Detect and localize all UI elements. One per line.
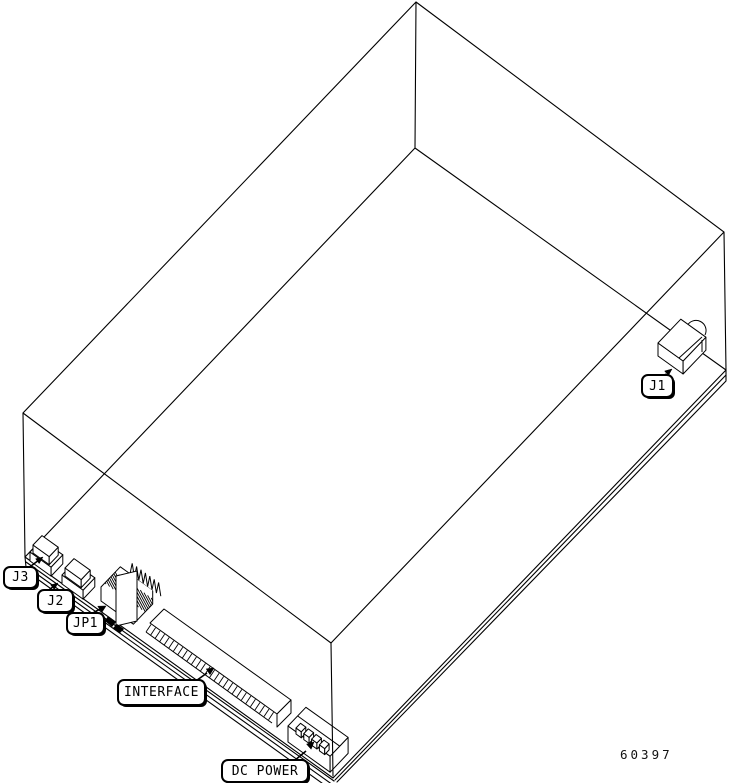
callout-j1: J1 bbox=[641, 374, 674, 398]
callout-interface-label: INTERFACE bbox=[124, 685, 199, 700]
connector-location-diagram: J3 J2 JP1 INTERFACE DC POWER J1 60397 bbox=[0, 0, 729, 783]
enclosure-wireframe bbox=[23, 2, 726, 643]
callout-j3-label: J3 bbox=[12, 570, 29, 585]
callout-interface: INTERFACE bbox=[117, 679, 206, 706]
isometric-line-drawing bbox=[0, 0, 729, 783]
callout-j3: J3 bbox=[3, 566, 38, 589]
figure-number: 60397 bbox=[620, 747, 673, 762]
callout-j2-label: J2 bbox=[47, 594, 64, 609]
j1-connector bbox=[658, 319, 706, 374]
callout-jp1-label: JP1 bbox=[73, 616, 98, 631]
callout-dc-power-label: DC POWER bbox=[232, 764, 299, 779]
callout-j1-label: J1 bbox=[649, 379, 666, 394]
callout-dc-power: DC POWER bbox=[221, 759, 309, 783]
callout-jp1: JP1 bbox=[66, 612, 105, 635]
callout-j2: J2 bbox=[37, 589, 74, 613]
